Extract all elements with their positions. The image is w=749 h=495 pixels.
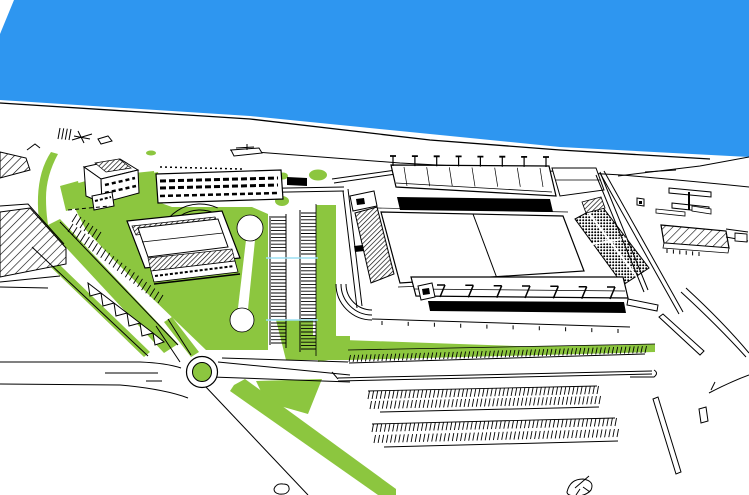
quay-lines-shape: [645, 170, 676, 172]
quay-scribbles: [27, 128, 262, 156]
west-roads-shape: [0, 384, 188, 398]
stadium-shape: [354, 245, 364, 252]
south-parking-shape: [338, 371, 652, 378]
water-area: [0, 0, 749, 159]
south-parking-shape: [384, 441, 618, 447]
stadium-shape: [356, 198, 365, 205]
east-pavilion-shape: [639, 201, 642, 204]
stadium-shape: [391, 165, 556, 196]
center-parking-shape: [271, 217, 286, 251]
center-parking-shape: [301, 213, 316, 254]
stadium-shape: [381, 212, 584, 283]
south-parking-shape: [374, 429, 619, 443]
south-parking: [274, 344, 655, 495]
east-road: [600, 171, 749, 474]
quay-scribbles-shape: [72, 131, 92, 143]
stadium-shape: [627, 299, 658, 311]
south-parking-shape: [567, 479, 592, 495]
east-road-shape: [711, 382, 715, 390]
east-pavilion-shape: [726, 229, 748, 232]
south-parking-shape: [372, 418, 617, 432]
quay-lines-shape: [618, 157, 749, 176]
south-parking-shape: [380, 407, 599, 412]
south-parking-shape: [368, 386, 597, 391]
stadium-shape: [552, 168, 604, 196]
center-parking-shape: [287, 177, 307, 186]
south-parking-shape: [274, 484, 289, 494]
green-areas-shape: [309, 170, 327, 181]
quay-scribbles-shape: [98, 136, 112, 144]
stadium-shape: [334, 174, 396, 183]
stadium-shape: [428, 301, 626, 313]
roundabout: [187, 357, 218, 388]
south-parking-shape: [338, 374, 652, 381]
stadium-shape: [422, 288, 430, 295]
site-plan: [0, 0, 749, 495]
green-areas: [30, 151, 655, 495]
quay-scribbles-shape: [27, 144, 40, 150]
green-areas-shape: [142, 317, 150, 323]
scene-root: [0, 0, 749, 495]
plaza-paths-shape: [230, 308, 254, 332]
stadium: [332, 156, 658, 333]
green-areas-shape: [146, 151, 156, 156]
stadium-shape: [390, 156, 549, 157]
green-areas-shape: [276, 320, 350, 360]
west-roads-shape: [218, 362, 350, 375]
east-pavilion-shape: [656, 209, 685, 216]
stadium-shape: [372, 319, 630, 327]
quay-scribbles-shape: [58, 128, 71, 140]
stadium-shape: [332, 170, 396, 179]
east-pavilion-shape: [735, 233, 747, 242]
east-road-shape: [681, 292, 746, 357]
east-road-shape: [659, 314, 704, 355]
roundabout-shape: [193, 363, 212, 382]
east-road-shape: [653, 397, 681, 474]
stadium-shape: [341, 284, 372, 315]
plaza-paths-shape: [237, 215, 263, 241]
east-pavilion: [637, 188, 748, 256]
west-roads-shape: [0, 362, 181, 368]
waterfront-buildings-shape: [160, 167, 242, 169]
left-parking-shape: [0, 276, 60, 282]
east-road-shape: [709, 375, 749, 393]
east-road-shape: [699, 407, 708, 423]
site-plan-page: [0, 0, 749, 495]
left-parking-shape: [0, 152, 30, 178]
quay-lines-shape: [0, 287, 48, 288]
